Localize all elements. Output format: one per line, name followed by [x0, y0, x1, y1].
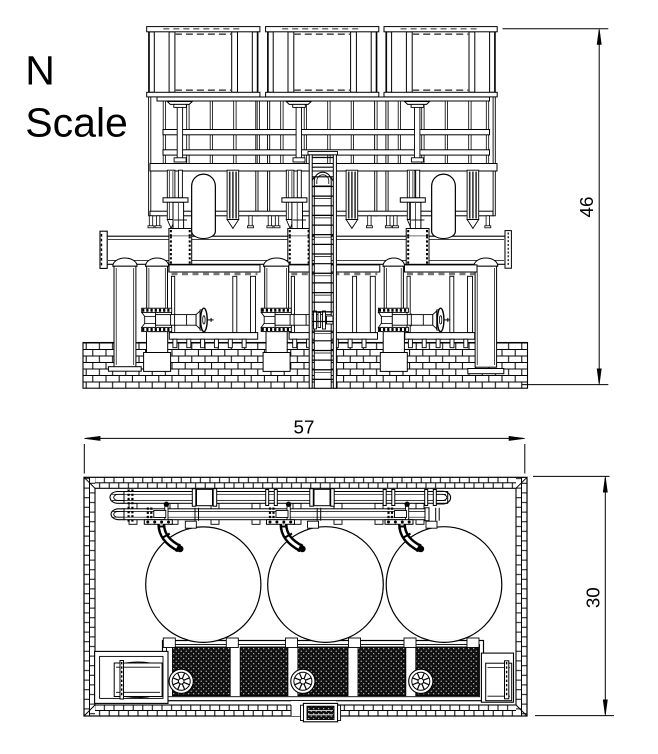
svg-text:46: 46: [576, 197, 597, 218]
svg-text:57: 57: [294, 416, 315, 437]
svg-text:30: 30: [583, 587, 604, 608]
svg-text:Scale: Scale: [25, 100, 128, 146]
svg-text:N: N: [25, 48, 55, 94]
